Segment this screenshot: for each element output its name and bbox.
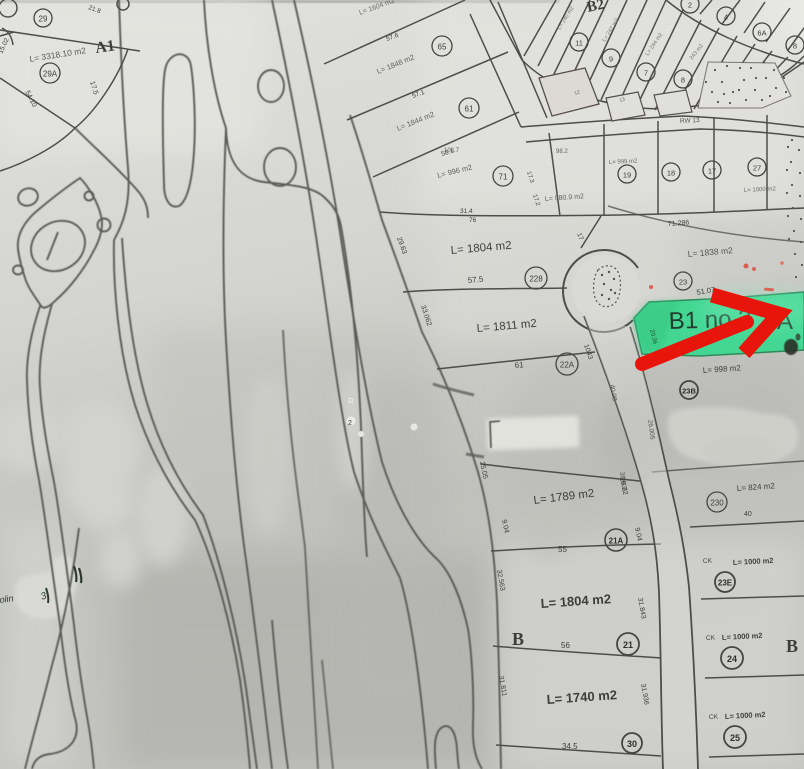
- svg-text:7: 7: [644, 69, 648, 78]
- svg-text:8: 8: [793, 42, 797, 51]
- svg-text:A1: A1: [94, 37, 116, 57]
- svg-text:23B: 23B: [682, 387, 696, 396]
- svg-text:61: 61: [465, 105, 474, 114]
- svg-text:4: 4: [724, 13, 728, 22]
- svg-text:23: 23: [679, 278, 687, 287]
- svg-text:B: B: [786, 636, 798, 656]
- svg-text:B: B: [512, 629, 524, 649]
- svg-text:108.7: 108.7: [444, 148, 460, 154]
- svg-text:24: 24: [727, 654, 737, 664]
- svg-text:76: 76: [469, 217, 477, 224]
- svg-text:71.286: 71.286: [668, 220, 690, 228]
- svg-text:40: 40: [744, 511, 752, 518]
- svg-text:65: 65: [438, 43, 447, 52]
- svg-text:CK: CK: [706, 634, 716, 641]
- svg-text:29A: 29A: [43, 70, 58, 79]
- svg-text:71: 71: [499, 173, 508, 182]
- svg-text:25: 25: [730, 733, 740, 743]
- svg-text:olin: olin: [0, 593, 14, 605]
- svg-text:9: 9: [609, 55, 613, 64]
- svg-text:22A: 22A: [560, 361, 575, 370]
- svg-text:21A: 21A: [609, 537, 624, 546]
- svg-text:CK: CK: [709, 713, 719, 720]
- svg-text:RW 13: RW 13: [680, 117, 700, 125]
- svg-text:19: 19: [623, 171, 631, 180]
- svg-text:23E: 23E: [718, 579, 733, 588]
- svg-text:17: 17: [708, 167, 716, 176]
- svg-text:228: 228: [529, 275, 543, 284]
- svg-text:57.5: 57.5: [467, 275, 484, 285]
- svg-text:30: 30: [627, 739, 637, 749]
- svg-text:11: 11: [575, 39, 583, 48]
- svg-text:98.2: 98.2: [556, 149, 568, 155]
- svg-text:31.4: 31.4: [460, 208, 473, 215]
- svg-text:2: 2: [348, 420, 352, 427]
- svg-text:34.5: 34.5: [562, 742, 578, 751]
- svg-text:6A: 6A: [757, 29, 766, 38]
- svg-text:29: 29: [39, 15, 48, 24]
- svg-text:56: 56: [561, 641, 570, 650]
- svg-text:61: 61: [514, 360, 524, 370]
- svg-text:18: 18: [667, 169, 675, 178]
- svg-text:8: 8: [681, 76, 685, 85]
- svg-text:R: R: [348, 397, 354, 406]
- svg-text:55: 55: [558, 545, 567, 554]
- svg-text:2: 2: [688, 1, 692, 10]
- svg-text:CK: CK: [703, 557, 713, 564]
- svg-text:21: 21: [623, 640, 633, 650]
- svg-text:27: 27: [753, 164, 761, 173]
- svg-text:230: 230: [710, 499, 724, 508]
